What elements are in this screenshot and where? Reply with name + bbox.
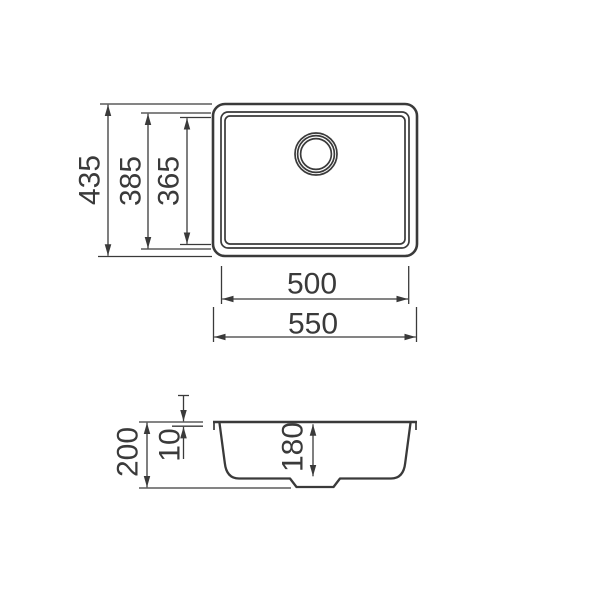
dim-label-435: 435 (74, 155, 107, 205)
dimension-overall-height: 435 (74, 105, 109, 256)
dimension-bowl-depth: 180 (277, 422, 314, 476)
dimension-rim-thickness: 10 (154, 396, 187, 462)
dim-label-365: 365 (153, 156, 186, 206)
drain-outline (295, 133, 337, 175)
dim-label-10: 10 (154, 428, 187, 461)
bowl-section-profile (220, 423, 411, 487)
dim-label-500: 500 (287, 268, 337, 301)
dimension-inner-bowl-height: 365 (153, 118, 188, 244)
drain-middle-ring (298, 136, 335, 173)
dim-label-385: 385 (115, 156, 148, 206)
dim-label-200: 200 (112, 427, 145, 477)
top-view: 435 385 365 500 550 (74, 104, 418, 342)
dim-label-550: 550 (288, 308, 338, 341)
sink-outer-edge (213, 104, 417, 256)
sink-dimension-drawing: 435 385 365 500 550 (0, 0, 600, 600)
dimension-overall-width: 550 (214, 308, 416, 341)
section-view: 200 10 180 (112, 396, 418, 489)
technical-drawing-canvas: 435 385 365 500 550 (0, 0, 600, 600)
dimension-overall-depth: 200 (112, 423, 148, 488)
dimension-inner-bowl-width: 500 (222, 268, 408, 301)
dim-label-180: 180 (277, 422, 310, 472)
drain-inner-ring (301, 139, 332, 170)
dimension-outer-bowl-height: 385 (115, 114, 149, 249)
